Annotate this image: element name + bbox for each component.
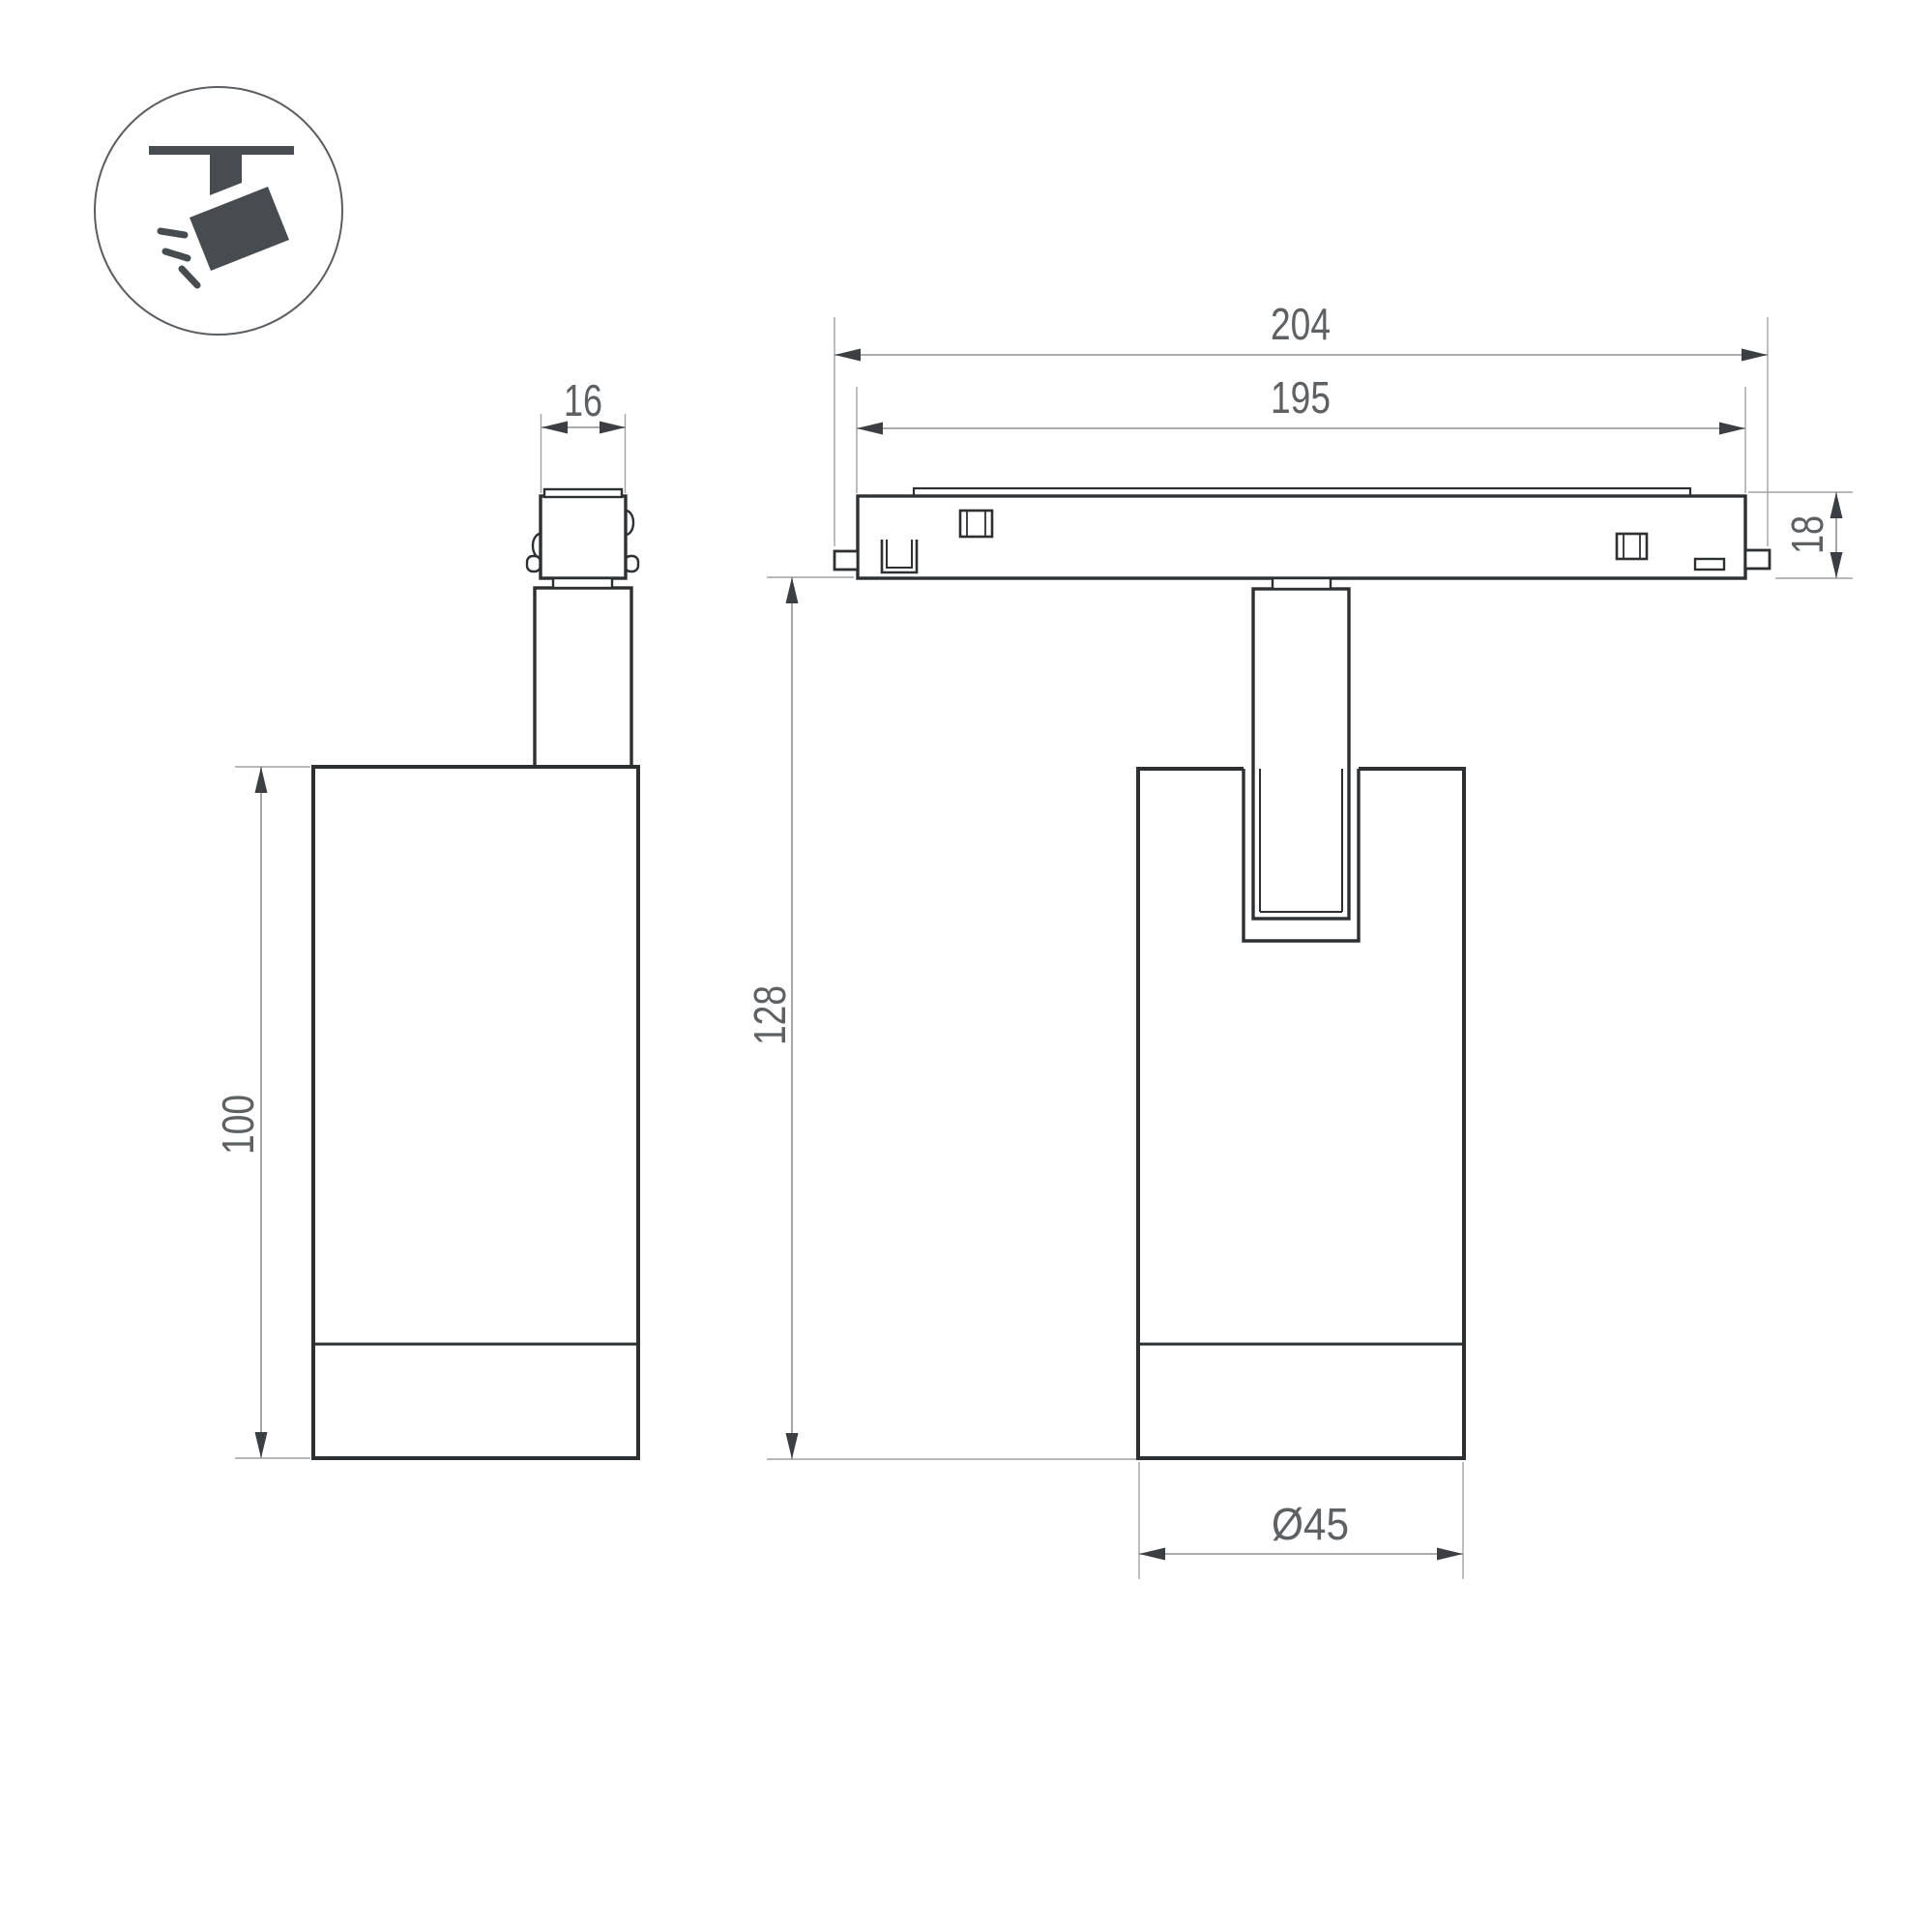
dim-label-128: 128 bbox=[745, 985, 795, 1045]
dim-track-body-length: 195 bbox=[857, 372, 1745, 493]
dim-label-100: 100 bbox=[213, 1095, 263, 1155]
dim-label-d45: Ø45 bbox=[1272, 1499, 1349, 1549]
dim-label-18: 18 bbox=[1782, 515, 1832, 554]
front-view bbox=[834, 488, 1770, 1458]
dim-label-204: 204 bbox=[1271, 299, 1331, 349]
dim-body-diameter: Ø45 bbox=[1139, 1462, 1463, 1579]
track-connector-box bbox=[541, 496, 626, 578]
side-body bbox=[313, 767, 638, 1458]
track-end-cap-left bbox=[834, 551, 858, 570]
dimension-drawing: 16 204 195 18 128 bbox=[0, 0, 1932, 1932]
front-neck bbox=[1273, 578, 1331, 589]
side-view bbox=[313, 489, 638, 1458]
dim-label-16: 16 bbox=[564, 375, 602, 425]
technical-drawing-page: 16 204 195 18 128 bbox=[0, 0, 1932, 1932]
connector-tab-left bbox=[527, 556, 541, 571]
dim-body-height: 100 bbox=[213, 767, 310, 1458]
track-connector-plate bbox=[544, 489, 622, 497]
icon-track-bar bbox=[149, 146, 294, 155]
track-spotlight-icon bbox=[95, 87, 342, 335]
track-end-cap-right bbox=[1745, 550, 1770, 569]
front-stem bbox=[1253, 589, 1349, 919]
side-stem bbox=[535, 588, 631, 767]
dim-fixture-height: 128 bbox=[745, 577, 1136, 1459]
dim-connector-width: 16 bbox=[542, 375, 627, 493]
dim-label-195: 195 bbox=[1271, 372, 1331, 423]
side-neck bbox=[553, 578, 612, 588]
